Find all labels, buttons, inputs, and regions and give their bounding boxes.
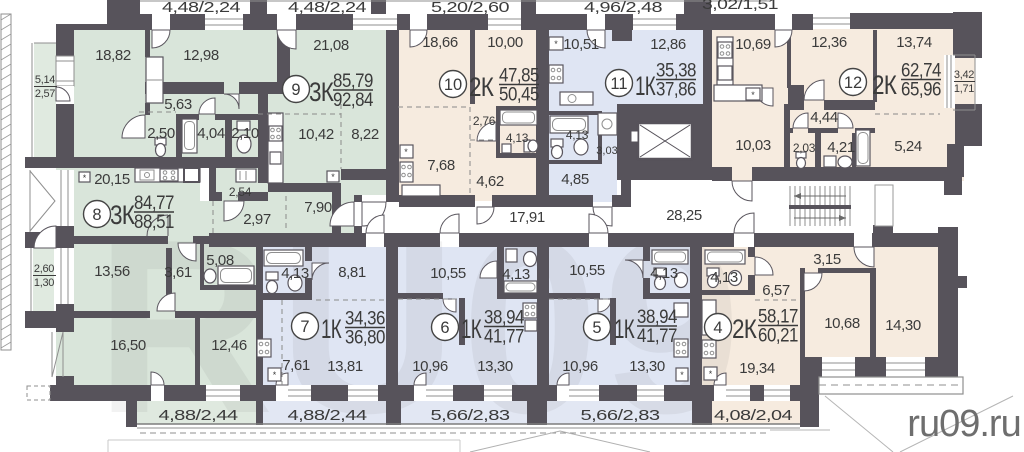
svg-text:47,85: 47,85 xyxy=(499,66,539,87)
svg-text:2,97: 2,97 xyxy=(243,211,271,228)
svg-text:5,66/2,83: 5,66/2,83 xyxy=(581,408,660,424)
svg-text:*: * xyxy=(554,39,558,49)
svg-text:8,22: 8,22 xyxy=(351,126,379,143)
svg-text:41,77: 41,77 xyxy=(637,326,677,347)
svg-text:4,96/2,48: 4,96/2,48 xyxy=(584,0,662,16)
svg-text:12,46: 12,46 xyxy=(211,337,247,354)
svg-text:7,68: 7,68 xyxy=(427,157,455,174)
svg-text:8,81: 8,81 xyxy=(338,264,366,281)
svg-text:1К: 1К xyxy=(321,314,342,344)
svg-text:10,55: 10,55 xyxy=(430,265,466,282)
svg-text:92,84: 92,84 xyxy=(333,90,374,111)
svg-text:10,00: 10,00 xyxy=(487,34,523,51)
svg-text:10,42: 10,42 xyxy=(298,126,334,143)
svg-text:9: 9 xyxy=(291,81,300,99)
svg-text:2К: 2К xyxy=(872,70,897,100)
svg-text:1,71: 1,71 xyxy=(954,83,974,95)
svg-text:12,98: 12,98 xyxy=(183,47,219,64)
svg-text:36,80: 36,80 xyxy=(345,328,385,349)
svg-text:*: * xyxy=(273,370,277,380)
svg-text:10,96: 10,96 xyxy=(412,358,448,375)
svg-text:21,08: 21,08 xyxy=(313,37,349,54)
svg-text:2,03: 2,03 xyxy=(793,141,816,155)
svg-text:3,15: 3,15 xyxy=(813,251,841,268)
svg-text:*: * xyxy=(331,172,335,182)
svg-text:3К: 3К xyxy=(110,200,135,230)
svg-text:38,94: 38,94 xyxy=(637,307,678,328)
svg-text:4,13: 4,13 xyxy=(710,269,738,286)
svg-text:11: 11 xyxy=(610,75,627,93)
svg-text:84,77: 84,77 xyxy=(134,193,174,214)
svg-text:34,36: 34,36 xyxy=(345,309,385,330)
svg-text:10,55: 10,55 xyxy=(569,262,605,279)
svg-text:50,45: 50,45 xyxy=(499,85,539,106)
svg-text:4: 4 xyxy=(713,319,722,337)
svg-text:2,50: 2,50 xyxy=(147,125,175,142)
svg-text:2,54: 2,54 xyxy=(229,185,252,199)
svg-text:5,08: 5,08 xyxy=(206,252,234,269)
svg-text:7,61: 7,61 xyxy=(282,357,310,374)
svg-text:65,96: 65,96 xyxy=(901,80,941,101)
svg-text:1К: 1К xyxy=(461,314,482,344)
svg-text:62,74: 62,74 xyxy=(901,61,942,82)
svg-text:2,57: 2,57 xyxy=(35,88,55,100)
svg-text:3,61: 3,61 xyxy=(164,264,192,281)
svg-text:12: 12 xyxy=(844,74,862,92)
svg-text:4,04: 4,04 xyxy=(197,125,225,142)
svg-text:2,10: 2,10 xyxy=(231,125,259,142)
svg-text:*: * xyxy=(709,369,713,379)
svg-text:2,76: 2,76 xyxy=(473,114,496,128)
svg-text:5,14: 5,14 xyxy=(35,74,55,86)
svg-text:1К: 1К xyxy=(635,71,656,101)
svg-text:38,94: 38,94 xyxy=(484,308,525,329)
svg-text:7: 7 xyxy=(300,318,309,336)
svg-text:12,36: 12,36 xyxy=(811,34,847,51)
svg-text:10,69: 10,69 xyxy=(735,36,771,53)
svg-text:4,48/2,24: 4,48/2,24 xyxy=(288,0,366,16)
svg-text:6: 6 xyxy=(440,319,449,337)
svg-text:5,63: 5,63 xyxy=(164,96,192,113)
svg-text:17,91: 17,91 xyxy=(509,209,545,226)
svg-text:13,74: 13,74 xyxy=(896,34,932,51)
svg-text:4,13: 4,13 xyxy=(281,265,309,282)
svg-text:5: 5 xyxy=(592,319,601,337)
svg-text:2К: 2К xyxy=(732,314,757,344)
svg-text:*: * xyxy=(680,370,684,380)
svg-text:4,88/2,44: 4,88/2,44 xyxy=(288,408,367,424)
svg-text:ru09.ru: ru09.ru xyxy=(907,403,1020,445)
svg-text:41,77: 41,77 xyxy=(484,327,524,348)
svg-text:4,85: 4,85 xyxy=(561,171,589,188)
svg-text:*: * xyxy=(404,147,408,157)
svg-text:3,42: 3,42 xyxy=(954,69,974,81)
svg-text:4,21: 4,21 xyxy=(827,139,855,156)
svg-text:14,30: 14,30 xyxy=(885,317,921,334)
svg-text:4,08/2,04: 4,08/2,04 xyxy=(714,408,792,424)
svg-text:*: * xyxy=(751,90,755,100)
svg-text:3,02/1,51: 3,02/1,51 xyxy=(702,0,778,13)
svg-text:7,90: 7,90 xyxy=(304,199,332,216)
svg-text:*: * xyxy=(83,173,87,183)
svg-text:1К: 1К xyxy=(614,314,635,344)
svg-text:19,34: 19,34 xyxy=(739,360,775,377)
svg-text:28,25: 28,25 xyxy=(666,207,702,224)
svg-text:1,30: 1,30 xyxy=(34,277,54,289)
svg-text:4,44: 4,44 xyxy=(810,109,838,126)
svg-text:12,86: 12,86 xyxy=(650,36,686,53)
svg-text:5,66/2,83: 5,66/2,83 xyxy=(431,408,510,424)
svg-text:16,50: 16,50 xyxy=(110,337,146,354)
svg-text:58,17: 58,17 xyxy=(758,307,798,328)
svg-text:13,81: 13,81 xyxy=(327,358,363,375)
svg-text:13,56: 13,56 xyxy=(94,263,130,280)
svg-text:5,24: 5,24 xyxy=(894,138,922,155)
svg-text:4,13: 4,13 xyxy=(650,265,678,282)
svg-text:3,03: 3,03 xyxy=(596,145,617,157)
svg-text:18,66: 18,66 xyxy=(422,34,458,51)
svg-text:20,15: 20,15 xyxy=(94,171,130,188)
svg-text:4,62: 4,62 xyxy=(476,173,504,190)
svg-text:2,60: 2,60 xyxy=(34,263,54,275)
svg-text:60,21: 60,21 xyxy=(758,326,798,347)
svg-text:5,20/2,60: 5,20/2,60 xyxy=(431,0,509,16)
svg-text:10,03: 10,03 xyxy=(735,137,771,154)
svg-text:4,48/2,24: 4,48/2,24 xyxy=(162,0,240,16)
svg-text:4,13: 4,13 xyxy=(506,131,529,145)
svg-text:10,51: 10,51 xyxy=(563,36,599,53)
svg-text:10: 10 xyxy=(444,76,462,94)
svg-text:4,13: 4,13 xyxy=(566,128,589,142)
svg-text:4,13: 4,13 xyxy=(502,266,530,283)
svg-text:13,30: 13,30 xyxy=(629,358,665,375)
svg-text:8: 8 xyxy=(92,206,101,224)
svg-text:13,30: 13,30 xyxy=(477,358,513,375)
svg-text:2К: 2К xyxy=(469,72,494,102)
svg-text:3К: 3К xyxy=(309,77,334,107)
svg-text:37,86: 37,86 xyxy=(656,80,696,101)
svg-text:35,38: 35,38 xyxy=(656,61,696,82)
svg-text:88,51: 88,51 xyxy=(134,212,174,233)
svg-text:18,82: 18,82 xyxy=(95,47,131,64)
svg-text:10,96: 10,96 xyxy=(562,358,598,375)
svg-text:6,57: 6,57 xyxy=(762,282,790,299)
svg-text:10,68: 10,68 xyxy=(824,315,860,332)
svg-text:85,79: 85,79 xyxy=(333,71,373,92)
svg-text:4,88/2,44: 4,88/2,44 xyxy=(159,408,238,424)
